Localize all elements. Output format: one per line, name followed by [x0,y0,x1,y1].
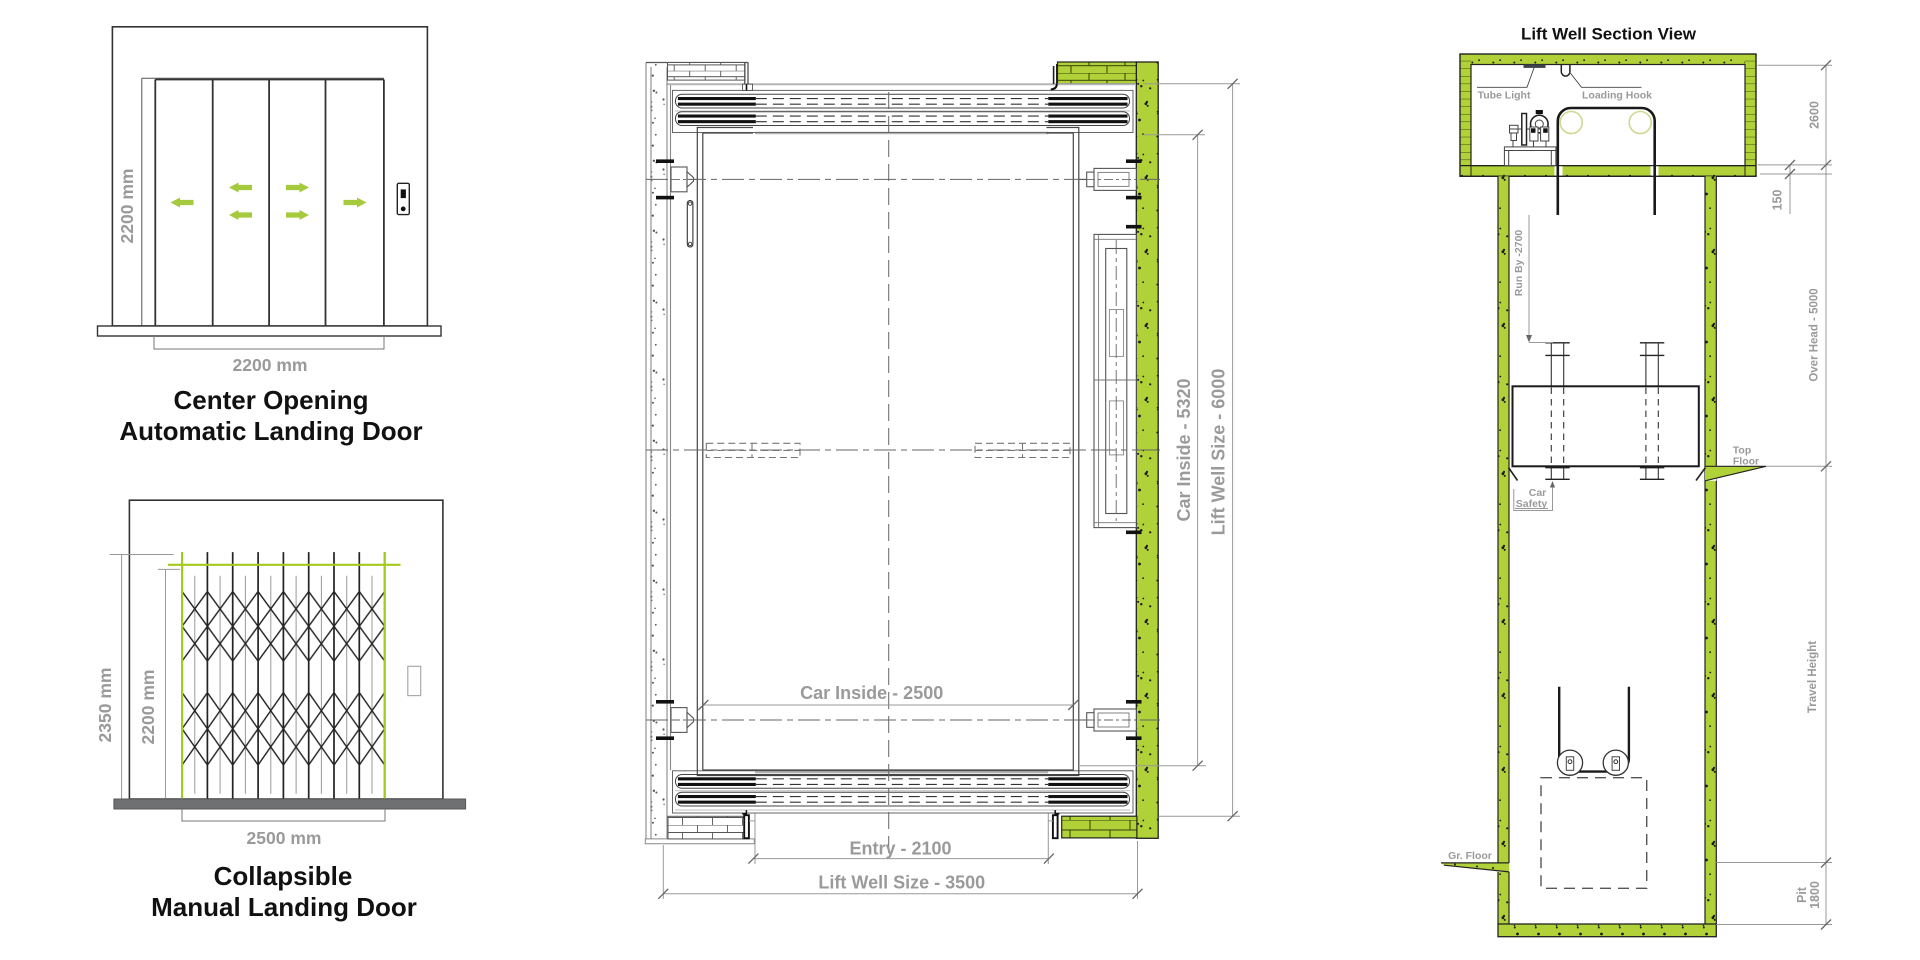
svg-text:Manual Landing Door: Manual Landing Door [151,892,417,922]
svg-text:Floor: Floor [1733,456,1759,468]
svg-text:2200 mm: 2200 mm [138,670,158,745]
svg-text:150: 150 [1771,190,1785,211]
svg-text:Lift Well Size - 3500: Lift Well Size - 3500 [818,873,985,893]
svg-text:Loading Hook: Loading Hook [1582,90,1652,102]
svg-text:Run By -2700: Run By -2700 [1513,230,1525,297]
svg-text:2350 mm: 2350 mm [95,668,115,743]
svg-text:2200 mm: 2200 mm [233,355,308,375]
svg-text:Entry - 2100: Entry - 2100 [849,839,951,859]
svg-text:Travel Height: Travel Height [1807,641,1819,713]
svg-text:1800: 1800 [1808,881,1822,909]
svg-text:Lift Well Section View: Lift Well Section View [1521,25,1697,44]
svg-text:2200 mm: 2200 mm [117,169,137,244]
svg-text:Center Opening: Center Opening [173,385,368,415]
svg-text:Pit: Pit [1795,886,1809,903]
svg-text:Car Inside - 5320: Car Inside - 5320 [1174,378,1194,521]
svg-text:Automatic Landing Door: Automatic Landing Door [119,416,422,446]
svg-text:2600: 2600 [1808,101,1822,129]
svg-text:2500 mm: 2500 mm [247,828,322,848]
svg-text:Lift Well Size - 6000: Lift Well Size - 6000 [1209,369,1229,536]
svg-text:Tube Light: Tube Light [1478,90,1531,102]
svg-text:Gr. Floor: Gr. Floor [1448,850,1492,862]
svg-text:Collapsible: Collapsible [214,861,353,891]
svg-text:Over Head - 5000: Over Head - 5000 [1809,288,1821,381]
svg-text:Car Inside - 2500: Car Inside - 2500 [800,683,943,703]
